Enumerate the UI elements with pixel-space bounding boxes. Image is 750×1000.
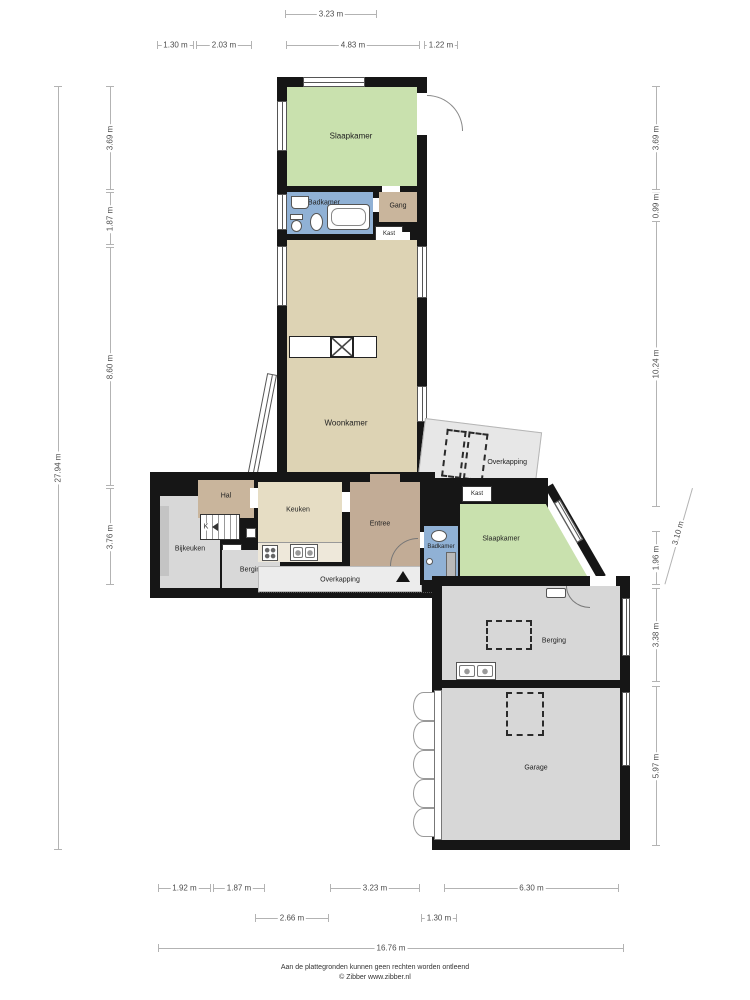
door-arc-slaapkamer-top	[427, 95, 463, 131]
garage-door-strip	[434, 690, 442, 840]
window-woonkamer-right-2	[417, 386, 427, 422]
door-gap-slaapkamer-top	[417, 93, 427, 135]
footer-disclaimer: Aan de plattegronden kunnen geen rechten…	[0, 964, 750, 971]
door-gap-badkamer-gang	[373, 198, 379, 212]
label-gang: Gang	[389, 203, 406, 210]
window-slaapkamer-left	[277, 101, 287, 151]
garage-door-leaf-3	[413, 750, 434, 779]
footer-credit: © Zibber www.zibber.nl	[0, 974, 750, 981]
garage-door-leaf-2	[413, 721, 434, 750]
dim-right-369: 3.69 m	[652, 86, 660, 190]
dim-bottom-266: 2.66 m	[255, 914, 329, 922]
utility-sink-icon	[456, 662, 496, 680]
label-badkamer-mid: Badkamer	[427, 544, 454, 550]
label-slaapkamer-mid: Slaapkamer	[482, 536, 519, 543]
label-bijkeuken: Bijkeuken	[175, 546, 205, 553]
skylight-berging	[486, 620, 532, 650]
door-gap-gang-woonkamer	[398, 232, 410, 240]
garage-door-leaf-1	[413, 692, 434, 721]
skylight-garage	[506, 692, 544, 736]
label-overkapping-right: Overkapping	[487, 459, 527, 466]
window-bay-angled	[247, 373, 277, 477]
window-garage-right	[622, 692, 630, 766]
dim-right-597: 5.97 m	[652, 686, 660, 846]
dim-right-099: 0.99 m	[652, 192, 660, 219]
dim-bottom-323: 3.23 m	[330, 884, 420, 892]
window-woonkamer-right-1	[417, 246, 427, 298]
entrance-marker-icon	[396, 571, 410, 582]
door-gap-keuken-entree	[342, 492, 350, 512]
room-slaapkamer-mid	[460, 504, 592, 580]
floorplan-canvas: Slaapkamer Badkamer Gang Kast Woonkamer …	[0, 0, 750, 1000]
shower-head-icon	[426, 558, 433, 565]
window-berging-right	[622, 598, 630, 656]
label-stairs-k: K	[203, 524, 210, 531]
label-kast-mid: Kast	[471, 491, 483, 497]
stairs-arrow	[212, 523, 218, 531]
label-hal: Hal	[221, 493, 232, 500]
vent-icon	[546, 588, 566, 598]
dim-top-203: 2.03 m	[196, 41, 252, 49]
door-gap-gang-slaapkamer	[382, 186, 400, 192]
skylight-overkapping-2	[463, 431, 489, 481]
meter-box	[246, 528, 256, 538]
dim-bottom-1676: 16.76 m	[158, 944, 624, 952]
door-gap-hal-keuken	[250, 488, 258, 508]
dim-top-130: 1.30 m	[157, 41, 194, 49]
dim-left-187: 1.87 m	[106, 192, 114, 245]
dim-right-1024: 10.24 m	[652, 221, 660, 507]
dim-top-122: 1.22 m	[424, 41, 458, 49]
label-berging-garage: Berging	[542, 638, 566, 645]
dim-right-338: 3.38 m	[652, 588, 660, 682]
counter-bijkeuken	[160, 506, 169, 576]
label-slaapkamer-top: Slaapkamer	[330, 132, 373, 141]
bathtub-icon	[327, 204, 370, 230]
sink-icon-badkamer-top	[291, 196, 309, 209]
dim-right-196: 1.96 m	[652, 531, 660, 585]
bidet-icon	[310, 213, 323, 231]
dim-left-860: 8.60 m	[106, 247, 114, 486]
door-gap-entree-badkamer	[420, 532, 424, 548]
dim-left-369: 3.69 m	[106, 86, 114, 190]
label-entree: Entree	[370, 521, 391, 528]
window-woonkamer-left	[277, 246, 287, 306]
garage-door-leaf-5	[413, 808, 434, 837]
dim-left-376: 3.76 m	[106, 488, 114, 585]
wall-keuken-entree	[342, 476, 350, 566]
label-overkapping-bottom: Overkapping	[320, 577, 360, 584]
toilet-icon-badkamer-mid	[431, 530, 447, 542]
label-woonkamer: Woonkamer	[325, 419, 368, 428]
dim-bottom-187: 1.87 m	[213, 884, 265, 892]
chimney-flue-icon	[330, 336, 354, 358]
opening-woonkamer-entree	[370, 474, 400, 482]
dim-top-323: 3.23 m	[285, 10, 377, 18]
door-gap-berging	[590, 576, 616, 586]
toilet-bowl-icon	[291, 220, 302, 232]
kitchen-sink-icon	[290, 544, 318, 561]
stove-icon	[262, 545, 278, 561]
shower-panel-icon	[446, 552, 456, 578]
dim-bottom-630: 6.30 m	[444, 884, 619, 892]
dim-top-483: 4.83 m	[286, 41, 420, 49]
dim-left-2794: 27.94 m	[54, 86, 62, 850]
window-badkamer-left	[277, 194, 287, 230]
label-kast-top: Kast	[383, 231, 395, 237]
window-slaapkamer-top	[303, 77, 365, 87]
dim-bottom-130: 1.30 m	[421, 914, 457, 922]
garage-door-leaf-4	[413, 779, 434, 808]
dim-bottom-192: 1.92 m	[158, 884, 211, 892]
label-keuken: Keuken	[286, 507, 310, 514]
dim-angled-310: 3.10 m	[670, 518, 686, 548]
label-garage: Garage	[524, 765, 547, 772]
